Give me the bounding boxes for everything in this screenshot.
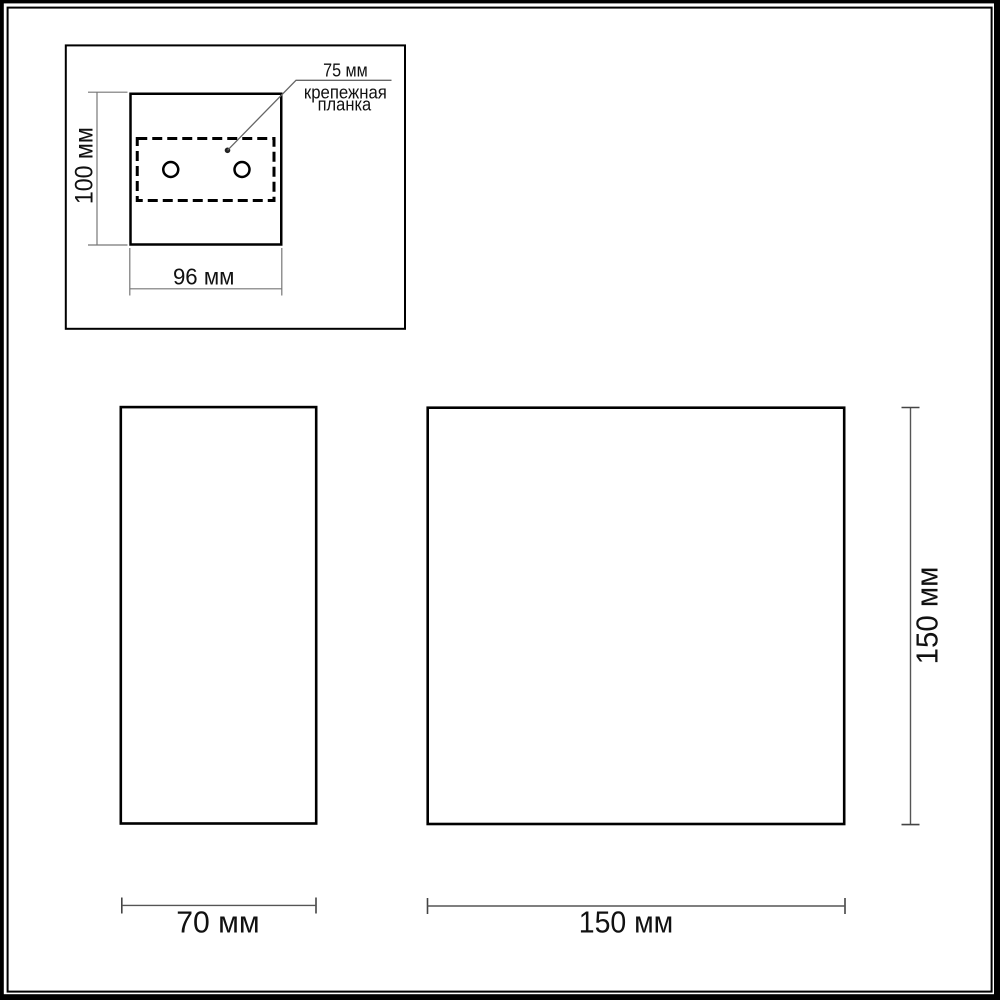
svg-text:150 мм: 150 мм (579, 904, 674, 939)
svg-text:75 мм: 75 мм (323, 61, 368, 81)
svg-text:планка: планка (318, 95, 373, 115)
svg-text:96 мм: 96 мм (173, 264, 235, 290)
svg-text:100 мм: 100 мм (70, 127, 98, 204)
svg-text:150 мм: 150 мм (909, 567, 944, 665)
svg-text:70 мм: 70 мм (176, 904, 259, 939)
